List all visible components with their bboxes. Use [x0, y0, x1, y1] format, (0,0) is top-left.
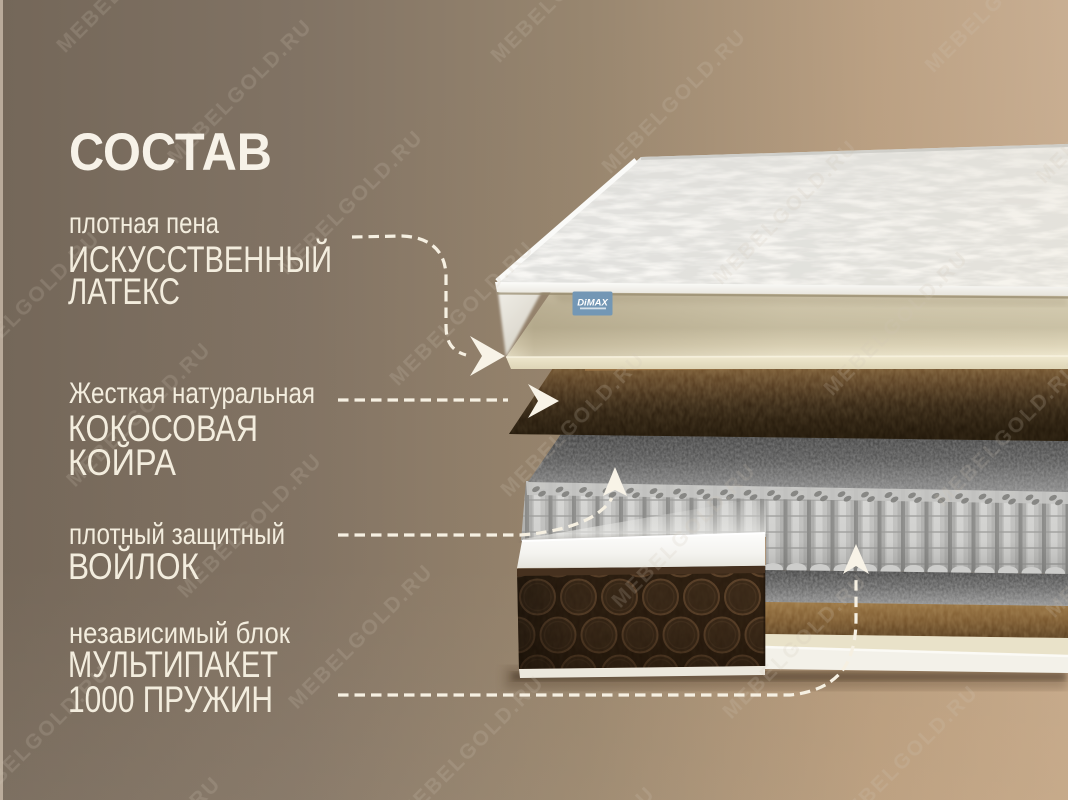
svg-text:КОЙРА: КОЙРА	[68, 441, 176, 483]
svg-text:1000 ПРУЖИН: 1000 ПРУЖИН	[68, 679, 273, 720]
svg-text:ЛАТЕКС: ЛАТЕКС	[68, 271, 180, 312]
svg-text:ВОЙЛОК: ВОЙЛОК	[68, 545, 199, 587]
svg-text:СОСТАВ: СОСТАВ	[69, 123, 272, 182]
svg-text:плотная пена: плотная пена	[69, 207, 219, 240]
svg-text:Жесткая натуральная: Жесткая натуральная	[69, 377, 315, 410]
